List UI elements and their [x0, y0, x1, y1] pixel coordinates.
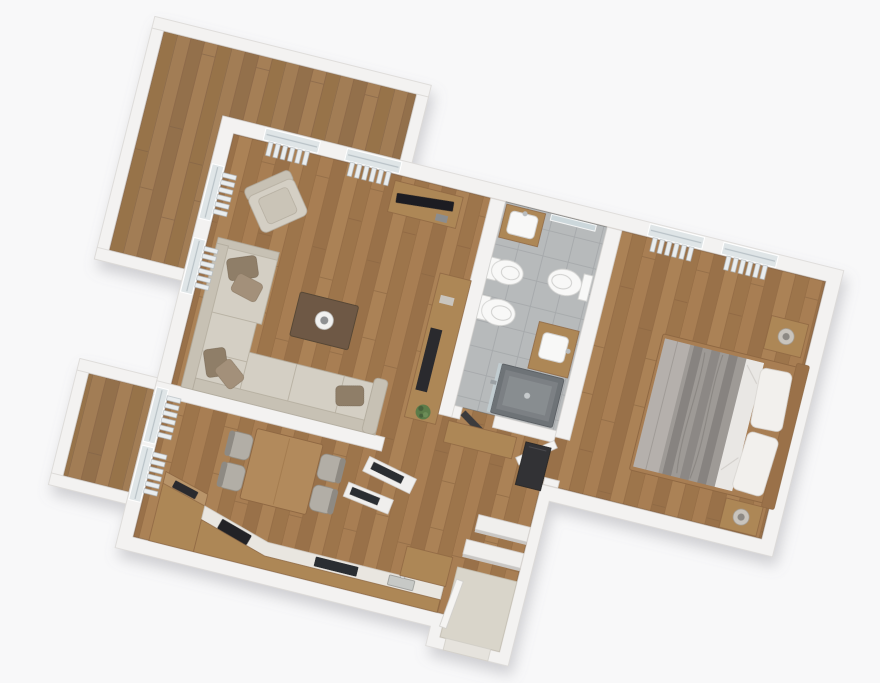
sink-basin — [538, 332, 570, 364]
floor-plan-render — [0, 0, 880, 683]
floor-plan-page — [0, 0, 880, 683]
